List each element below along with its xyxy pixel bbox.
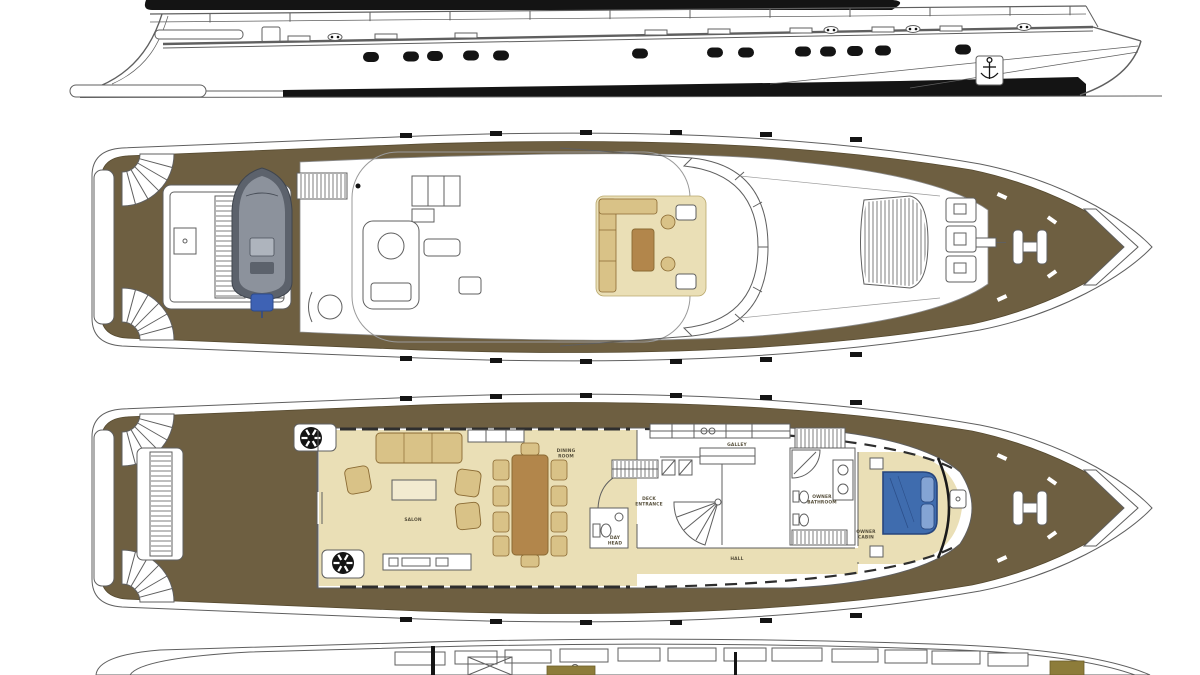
tender [232,168,292,318]
owner-bathroom: OWNER BATHROOM [790,448,855,545]
stern-cap [94,430,114,586]
profile-view [70,0,1162,98]
galley-label: GALLEY [727,442,747,448]
pillow [921,504,934,529]
salon-label: SALON [404,517,422,523]
ventilation-fan [332,552,354,574]
dining-table [512,455,548,555]
salon-sideboard [383,554,471,570]
galley-block [547,666,595,675]
dining-area: DINING ROOM [493,443,576,567]
crew-stairs [795,428,845,450]
main-deck-plan: SALON DINING ROOM [92,393,1152,625]
flybridge-dinette [596,196,706,296]
swim-platform [70,85,206,97]
anchor-icon [976,56,1003,85]
deck-fittings [288,24,1031,42]
deck-entrance-label: DECK [642,496,656,502]
foredeck-locker [950,490,966,508]
nightstand [870,458,883,469]
hall-corridor-floor [637,548,858,574]
ventilation-fan [300,427,322,449]
svg-text:ROOM: ROOM [558,454,574,460]
svg-text:BATHROOM: BATHROOM [807,500,837,506]
owner-bathroom-label: OWNER [812,494,832,500]
svg-text:CABIN: CABIN [858,535,874,541]
lower-deck-plan-partial [96,639,1150,675]
dinette-table [632,229,654,271]
stern-cap [94,170,114,324]
owner-cabin-label: OWNER [856,529,876,535]
pillow [921,477,934,502]
transom [100,14,168,86]
tender-outboard-engine [251,294,273,311]
stern-door [262,27,280,42]
yacht-general-arrangement: SALON DINING ROOM [0,0,1200,675]
stairs-down [612,460,658,478]
sun-deck-plan [92,130,1152,364]
coffee-table [392,480,436,500]
galley-block [1050,661,1084,675]
bulkhead [734,652,737,675]
foredeck-sunpad [861,196,929,288]
hall-label: HALL [730,556,743,562]
day-head-label: DAY [610,535,621,541]
stern-window-slot [155,30,243,39]
boarding-ladder [297,173,347,199]
transom-housing [137,448,183,560]
portholes [363,45,971,63]
dining-room-label: DINING [557,448,576,454]
svg-text:HEAD: HEAD [608,541,623,547]
svg-text:ENTRANCE: ENTRANCE [635,502,663,508]
helm-seat [676,205,696,220]
wardrobe [792,530,847,545]
bulkhead [431,646,435,675]
salon-cabinet [468,430,524,442]
hull-boot-stripe [283,77,1086,98]
day-head: DAY HEAD [590,508,628,548]
salon-sofa [376,433,462,463]
crane-base [356,184,361,189]
nightstand [870,546,883,557]
